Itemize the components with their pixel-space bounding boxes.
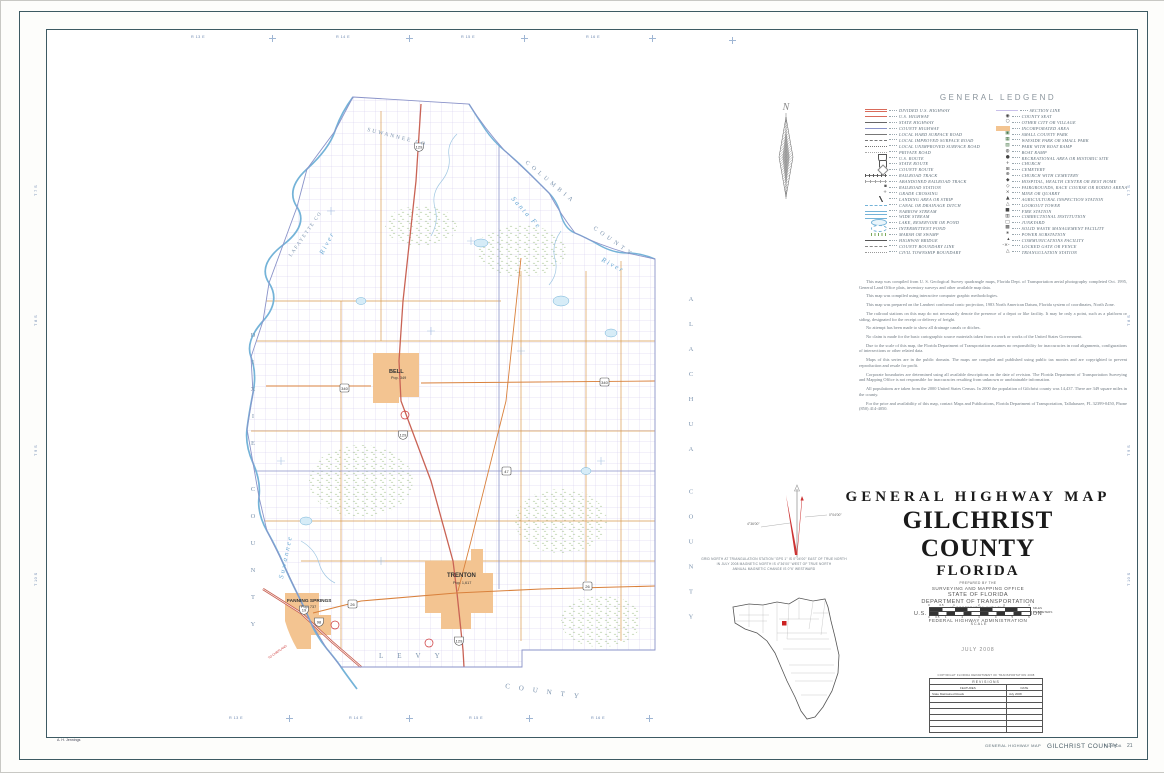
margin-tick-cross [286,715,293,722]
margin-tick-cross [269,35,276,42]
range-label-bottom: R 14 E [349,716,363,720]
township-label-right: T 9 S [1127,445,1131,456]
margin-tick-cross [406,715,413,722]
township-label-left: T 8 S [34,315,38,326]
township-label-right: T 8 S [1127,315,1131,326]
township-label-right: T 10 S [1127,572,1131,586]
range-label-bottom: R 16 E [591,716,605,720]
margin-tick-cross [649,35,656,42]
range-label-top: R 15 E [461,35,475,39]
township-label-right: T 7 S [1127,185,1131,196]
township-label-left: T 10 S [34,572,38,586]
margin-tick-cross [729,37,736,44]
map-sheet: 129 129 129 19 98 340 340 47 26 26 [0,0,1164,773]
range-label-top: R 13 E [191,35,205,39]
range-label-top: R 16 E [586,35,600,39]
range-label-bottom: R 13 E [229,716,243,720]
township-label-left: T 7 S [34,185,38,196]
footer-page-number: 21 [1127,743,1133,749]
margin-tick-cross [406,35,413,42]
margin-tick-cross [521,35,528,42]
footer-series: GENERAL HIGHWAY MAP [985,743,1041,748]
cartographer-credit: A. H. Jennings [57,738,80,742]
margin-tick-cross [646,715,653,722]
margin-labels: R 13 ER 14 ER 15 ER 16 ER 13 ER 14 ER 15… [1,1,1164,772]
range-label-bottom: R 15 E [469,716,483,720]
range-label-top: R 14 E [336,35,350,39]
township-label-left: T 9 S [34,445,38,456]
margin-tick-cross [526,715,533,722]
footer-state: FLORIDA [1104,743,1121,748]
